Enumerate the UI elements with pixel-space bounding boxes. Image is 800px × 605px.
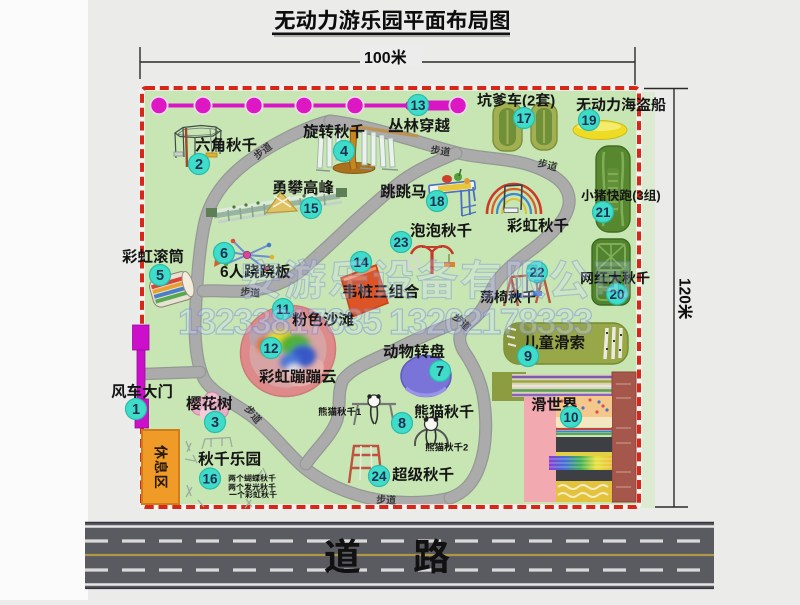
svg-text:16: 16 [202, 472, 218, 487]
svg-text:12: 12 [263, 341, 278, 356]
svg-text:10: 10 [563, 410, 578, 425]
svg-text:24: 24 [371, 469, 387, 484]
svg-text:1: 1 [132, 402, 140, 418]
svg-text:18: 18 [429, 194, 445, 209]
svg-text:): ) [656, 188, 660, 203]
svg-text:2: 2 [195, 157, 203, 173]
svg-text:4: 4 [340, 144, 348, 160]
svg-text:1: 1 [356, 407, 362, 418]
svg-text:13: 13 [410, 98, 426, 113]
svg-text:15: 15 [303, 201, 319, 216]
svg-text:6: 6 [220, 246, 228, 262]
svg-text:8: 8 [398, 416, 406, 432]
svg-text:9: 9 [524, 349, 532, 365]
svg-text:6: 6 [220, 264, 229, 281]
svg-text:5: 5 [156, 268, 164, 284]
svg-text:23: 23 [393, 235, 409, 250]
svg-text:120: 120 [676, 278, 693, 304]
svg-text:19: 19 [581, 113, 596, 128]
svg-text:7: 7 [436, 364, 444, 380]
svg-text:(3: (3 [632, 188, 643, 203]
svg-text:17: 17 [516, 111, 531, 126]
svg-text:13233817635 13202178333: 13233817635 13202178333 [178, 301, 592, 342]
svg-text:21: 21 [595, 205, 611, 220]
svg-text:): ) [550, 93, 555, 110]
svg-text:100: 100 [364, 50, 391, 67]
svg-text:3: 3 [211, 415, 219, 431]
svg-text:2: 2 [463, 443, 468, 454]
